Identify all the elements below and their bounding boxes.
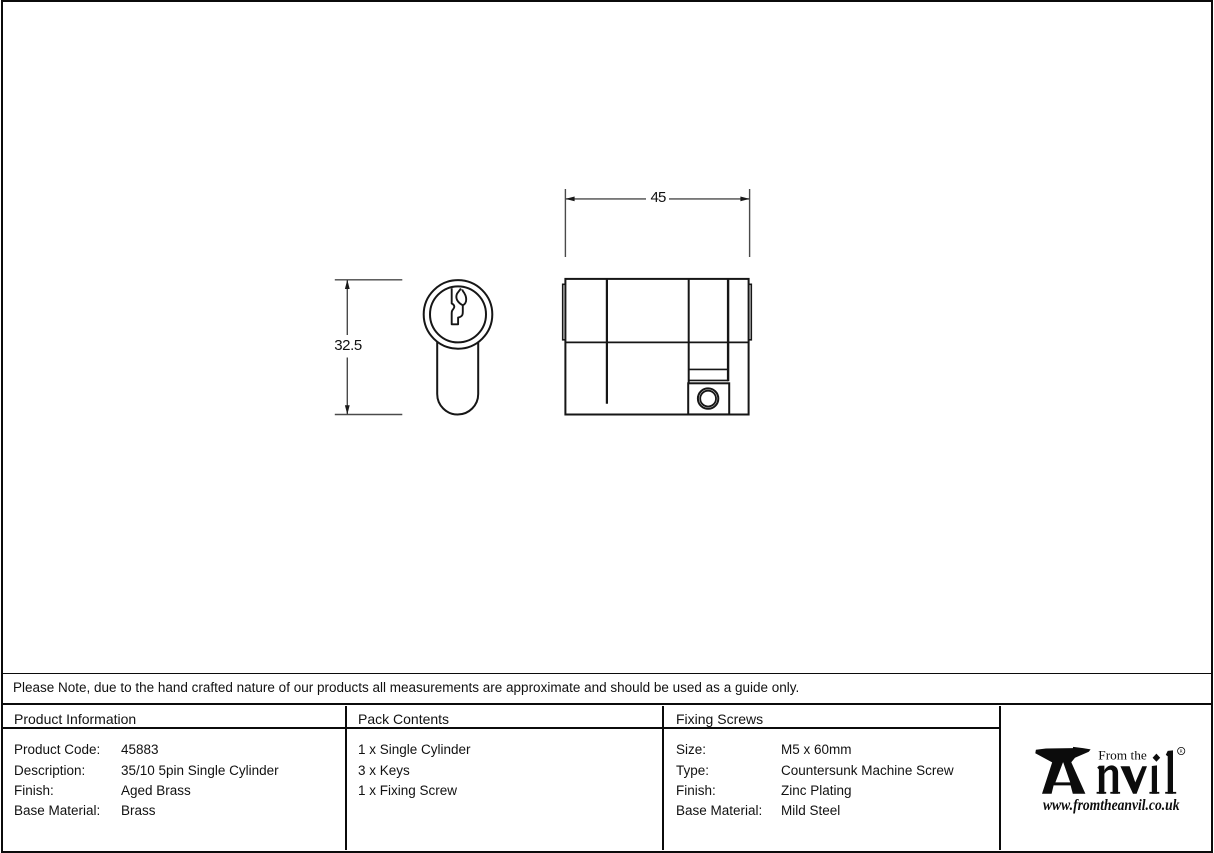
- svg-text:From the: From the: [1098, 747, 1147, 762]
- svg-text:www.fromtheanvil.co.uk: www.fromtheanvil.co.uk: [1043, 795, 1180, 814]
- svg-text:R: R: [1180, 749, 1184, 754]
